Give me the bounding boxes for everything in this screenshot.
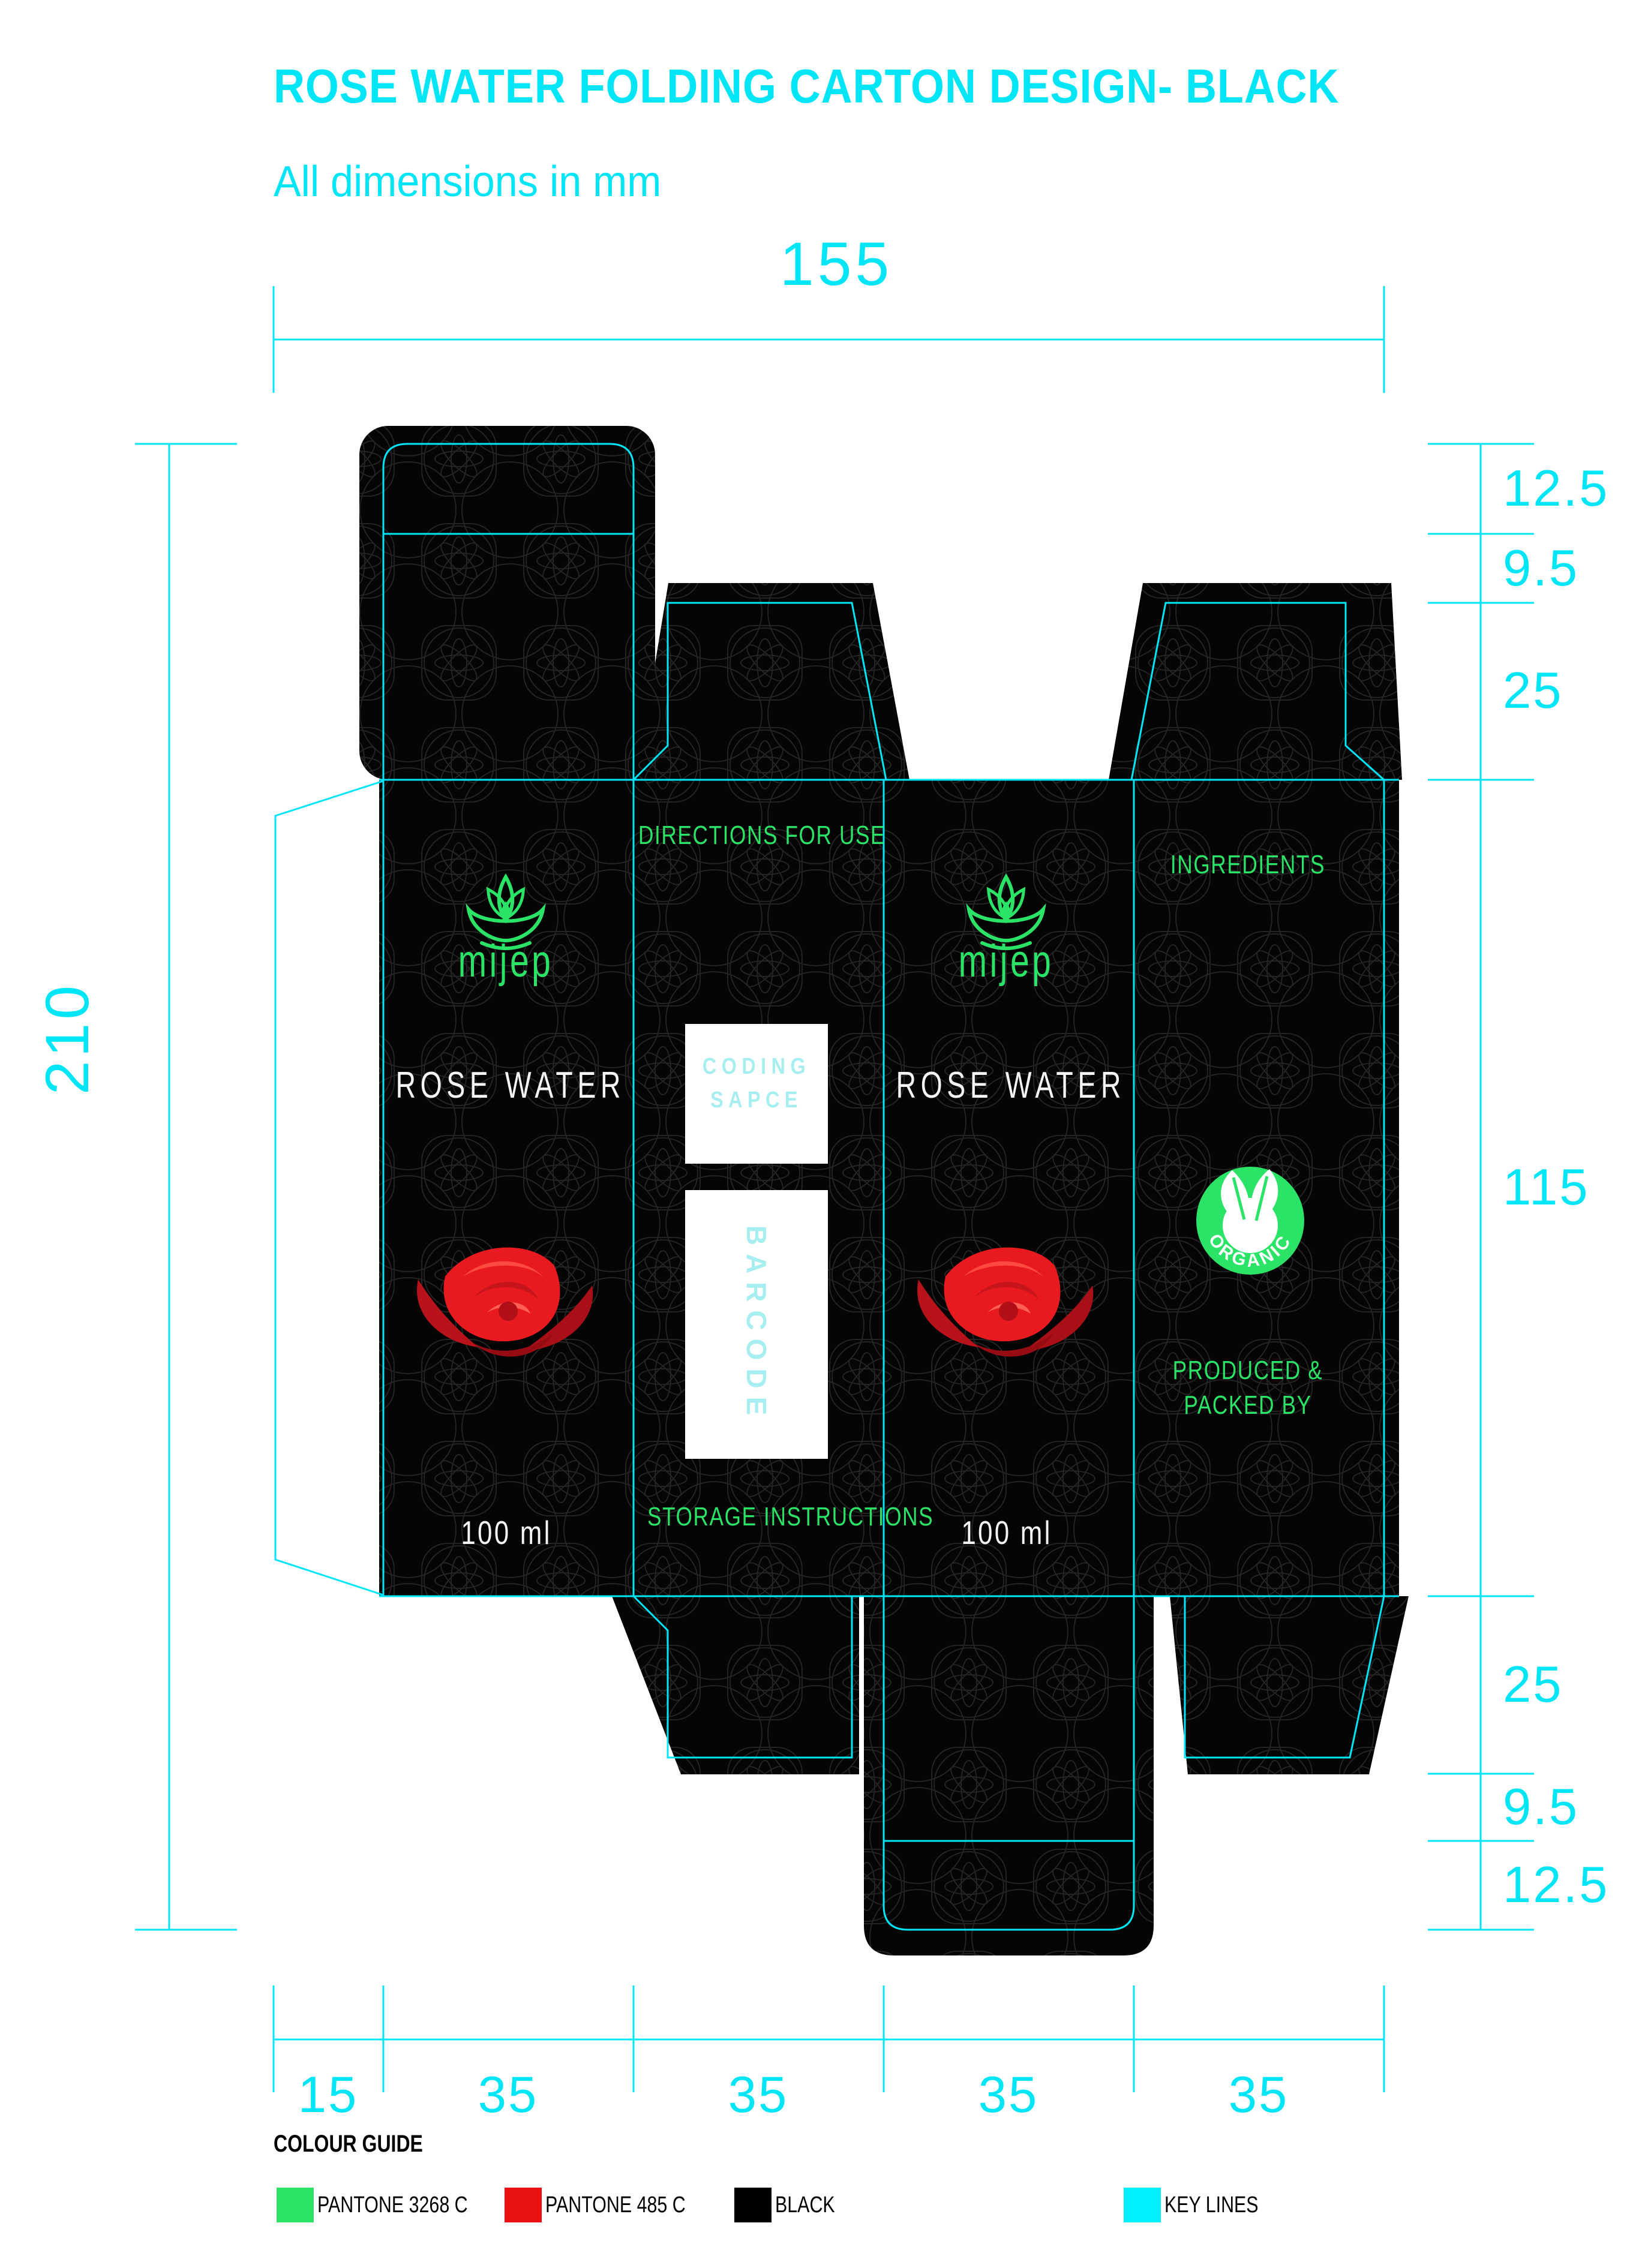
dim-right-4: 115: [1503, 1155, 1590, 1221]
barcode-label: BARCODE: [739, 1204, 775, 1444]
dim-bottom-1: 15: [262, 2062, 394, 2128]
coding-space-label: CODING SAPCE: [685, 1050, 828, 1117]
dim-total-height: 210: [31, 951, 103, 1125]
bottom-dust-flap-left: [612, 1596, 859, 1774]
swatch-pantone-485c: [505, 2188, 542, 2222]
front-product-name: ROSE WATER: [396, 1065, 621, 1107]
swatch-black: [734, 2188, 772, 2222]
front-volume: 100 ml: [434, 1515, 578, 1551]
swatch-label-pantone-485c: PANTONE 485 C: [545, 2188, 686, 2222]
dim-right-6: 9.5: [1503, 1774, 1579, 1840]
dim-bottom-5: 35: [1193, 2062, 1325, 2128]
back-brand-wordmark: mijep: [916, 938, 1096, 986]
bottom-tuck-flap: [864, 1596, 1154, 1955]
page-title: ROSE WATER FOLDING CARTON DESIGN- BLACK: [274, 59, 1339, 114]
produced-by-line1: PRODUCED &: [1152, 1353, 1344, 1388]
dim-right-2: 9.5: [1503, 536, 1579, 602]
top-dust-flap-left: [636, 583, 909, 780]
dim-right-1: 12.5: [1503, 456, 1609, 522]
swatch-keylines: [1124, 2188, 1161, 2222]
dim-bottom-4: 35: [942, 2062, 1074, 2128]
produced-by-line2: PACKED BY: [1152, 1388, 1344, 1423]
dim-right-3: 25: [1503, 658, 1563, 724]
back-volume: 100 ml: [935, 1515, 1079, 1551]
dim-bottom-3: 35: [692, 2062, 824, 2128]
coding-space-line1: CODING: [696, 1050, 817, 1083]
produced-by-label: PRODUCED & PACKED BY: [1128, 1353, 1368, 1423]
back-product-name: ROSE WATER: [896, 1065, 1121, 1107]
dim-right-5: 25: [1503, 1652, 1563, 1718]
directions-heading: DIRECTIONS FOR USE: [638, 820, 878, 851]
colour-guide-title: COLOUR GUIDE: [274, 2131, 423, 2158]
carton-design-sheet: ORGANIC ROSE WATER FOLDING CARTON DESIGN…: [0, 0, 1630, 2268]
swatch-pantone-3268c: [277, 2188, 314, 2222]
page-subtitle: All dimensions in mm: [274, 157, 661, 206]
carton-dieline: ORGANIC: [0, 0, 1630, 2268]
dim-bottom-2: 35: [442, 2062, 574, 2128]
swatch-label-black: BLACK: [775, 2188, 835, 2222]
organic-badge: ORGANIC: [1196, 1167, 1304, 1275]
top-tuck-flap: [359, 426, 655, 780]
front-brand-wordmark: mijep: [416, 938, 596, 986]
bottom-dust-flap-right: [1170, 1596, 1409, 1774]
coding-space-line2: SAPCE: [696, 1083, 817, 1117]
swatch-label-pantone-3268c: PANTONE 3268 C: [317, 2188, 468, 2222]
dim-total-width: 155: [746, 229, 926, 299]
glue-flap-outline: [275, 781, 383, 1595]
swatch-label-keylines: KEY LINES: [1164, 2188, 1259, 2222]
dim-right-7: 12.5: [1503, 1852, 1609, 1918]
height-dimension-line: [135, 444, 237, 1930]
width-dimension-line: [274, 286, 1384, 393]
ingredients-heading: INGREDIENTS: [1152, 849, 1344, 881]
top-dust-flap-right: [1109, 583, 1402, 780]
storage-heading: STORAGE INSTRUCTIONS: [647, 1501, 887, 1533]
